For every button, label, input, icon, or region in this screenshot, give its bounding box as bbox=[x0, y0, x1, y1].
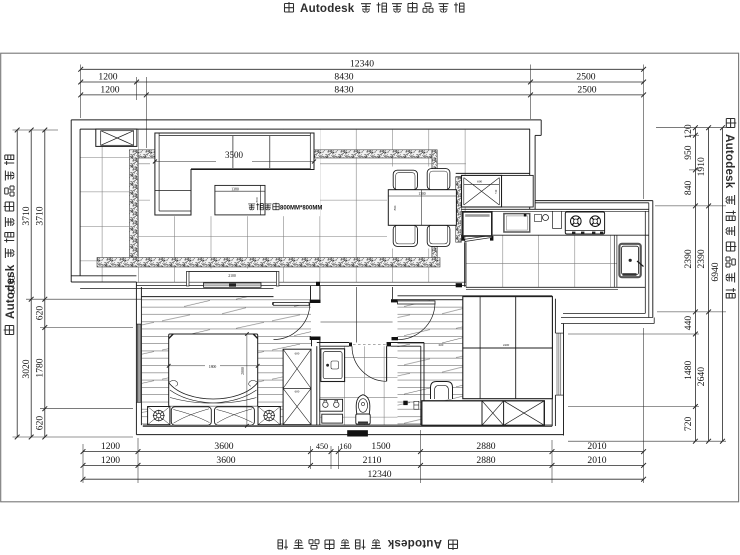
svg-text:8430: 8430 bbox=[334, 84, 353, 95]
svg-text:1200: 1200 bbox=[100, 84, 119, 95]
svg-text:2390: 2390 bbox=[696, 249, 707, 268]
svg-text:450: 450 bbox=[316, 442, 328, 451]
svg-text:2010: 2010 bbox=[587, 455, 606, 466]
svg-text:600: 600 bbox=[295, 390, 300, 394]
svg-text:160: 160 bbox=[339, 442, 351, 451]
svg-text:1200: 1200 bbox=[101, 455, 120, 466]
svg-text:2880: 2880 bbox=[476, 441, 495, 452]
svg-text:2110: 2110 bbox=[363, 455, 382, 466]
svg-text:1380: 1380 bbox=[231, 187, 239, 191]
svg-text:3500: 3500 bbox=[225, 150, 244, 160]
svg-text:1200: 1200 bbox=[101, 441, 120, 452]
svg-text:440: 440 bbox=[683, 316, 694, 331]
svg-text:2500: 2500 bbox=[577, 84, 596, 95]
svg-text:6940: 6940 bbox=[710, 262, 721, 281]
svg-text:12340: 12340 bbox=[368, 469, 392, 480]
svg-text:3710: 3710 bbox=[21, 206, 32, 225]
svg-text:1800: 1800 bbox=[209, 365, 217, 369]
svg-text:6730: 6730 bbox=[7, 275, 18, 294]
svg-text:2500: 2500 bbox=[576, 72, 595, 83]
svg-text:620: 620 bbox=[35, 416, 46, 431]
svg-text:2400: 2400 bbox=[503, 343, 510, 347]
svg-text:600: 600 bbox=[439, 343, 444, 347]
svg-text:3600: 3600 bbox=[214, 441, 233, 452]
svg-text:800: 800 bbox=[255, 197, 259, 202]
svg-text:3710: 3710 bbox=[35, 206, 46, 225]
svg-text:1500: 1500 bbox=[371, 441, 390, 452]
svg-text:12340: 12340 bbox=[350, 58, 374, 69]
svg-text:2100: 2100 bbox=[228, 274, 236, 278]
svg-text:730: 730 bbox=[494, 189, 498, 194]
svg-text:8430: 8430 bbox=[334, 72, 353, 83]
svg-text:1780: 1780 bbox=[35, 358, 46, 377]
svg-text:3020: 3020 bbox=[21, 359, 32, 378]
svg-text:1300: 1300 bbox=[418, 192, 425, 196]
svg-text:1910: 1910 bbox=[696, 157, 707, 176]
svg-text:2000: 2000 bbox=[241, 367, 245, 375]
svg-text:600: 600 bbox=[295, 352, 300, 356]
svg-text:600: 600 bbox=[477, 180, 482, 184]
svg-text:840: 840 bbox=[683, 181, 694, 196]
svg-text:2880: 2880 bbox=[476, 455, 495, 466]
svg-text:3600: 3600 bbox=[216, 455, 235, 466]
svg-text:120: 120 bbox=[683, 124, 694, 139]
svg-text:800: 800 bbox=[393, 205, 397, 210]
svg-text:2390: 2390 bbox=[683, 249, 694, 268]
svg-text:1480: 1480 bbox=[683, 361, 694, 380]
svg-text:2010: 2010 bbox=[587, 441, 606, 452]
svg-text:950: 950 bbox=[683, 145, 694, 160]
svg-text:2640: 2640 bbox=[696, 367, 707, 386]
svg-text:620: 620 bbox=[35, 306, 46, 321]
svg-text:800MM*800MM: 800MM*800MM bbox=[280, 206, 322, 212]
svg-text:1200: 1200 bbox=[98, 72, 117, 83]
svg-text:720: 720 bbox=[683, 417, 694, 432]
